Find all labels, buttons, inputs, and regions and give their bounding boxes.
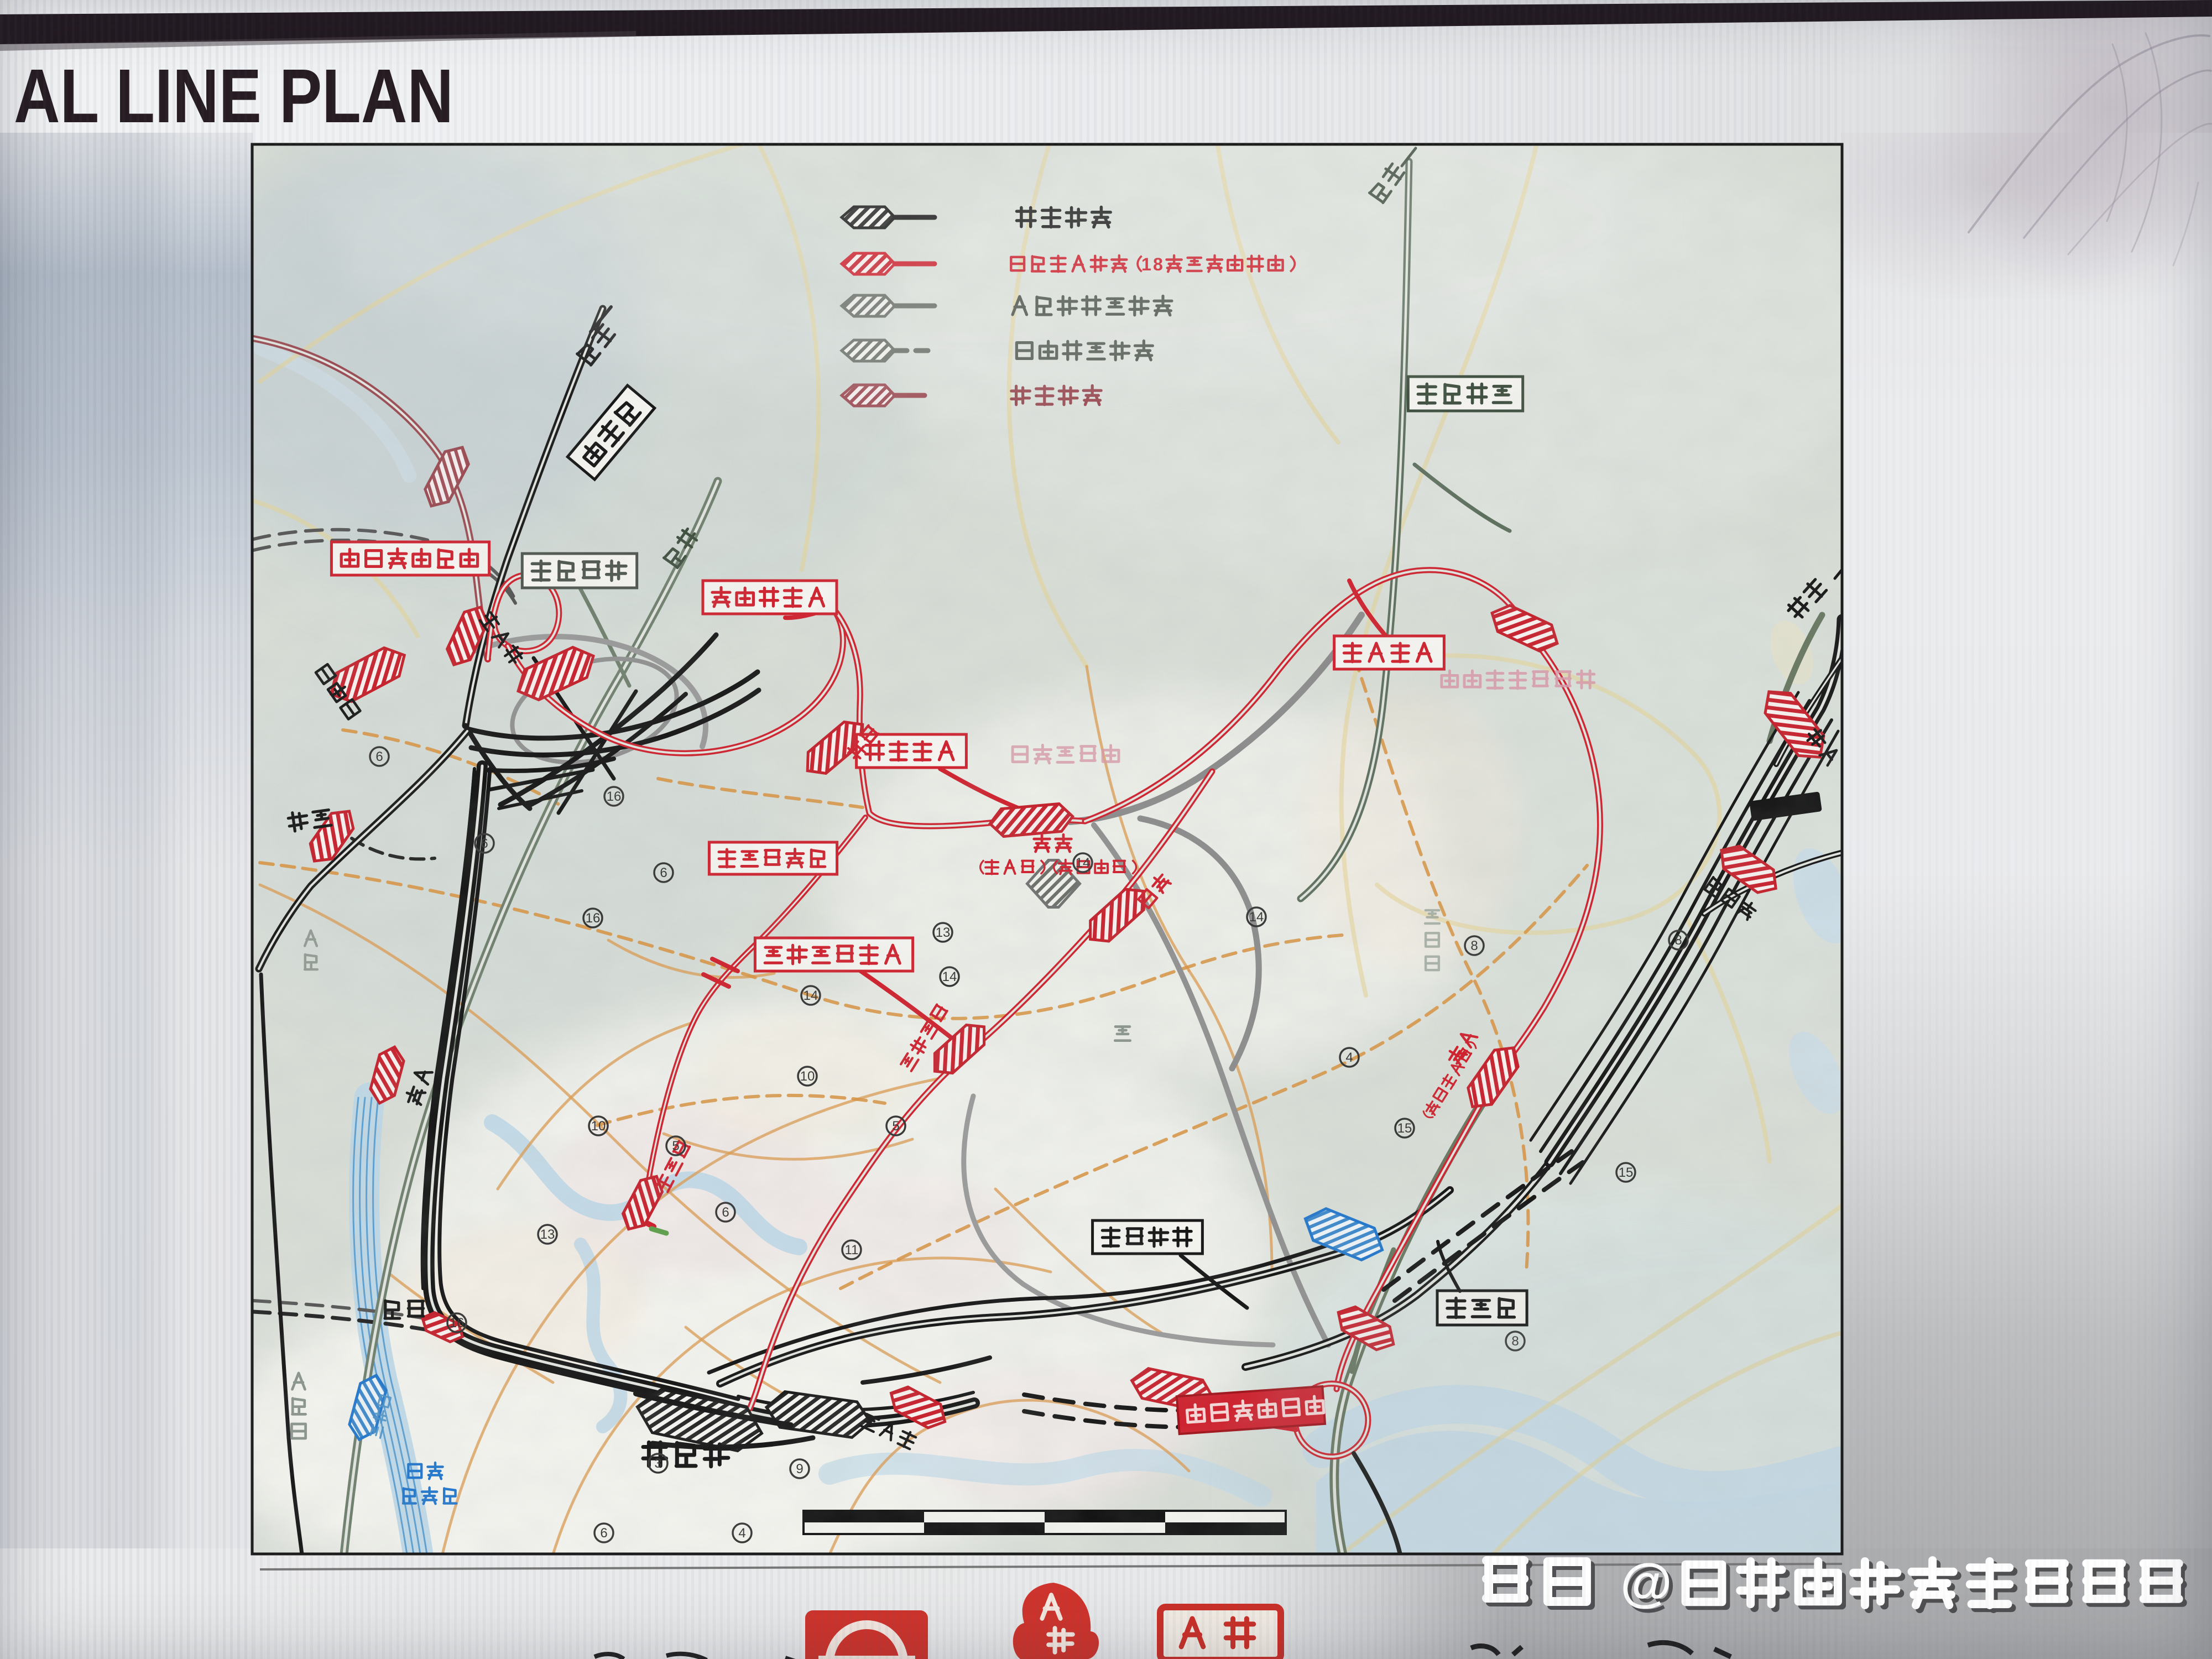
svg-text:AL LINE PLAN: AL LINE PLAN: [14, 54, 453, 139]
svg-text:@: @: [1620, 1553, 1672, 1613]
